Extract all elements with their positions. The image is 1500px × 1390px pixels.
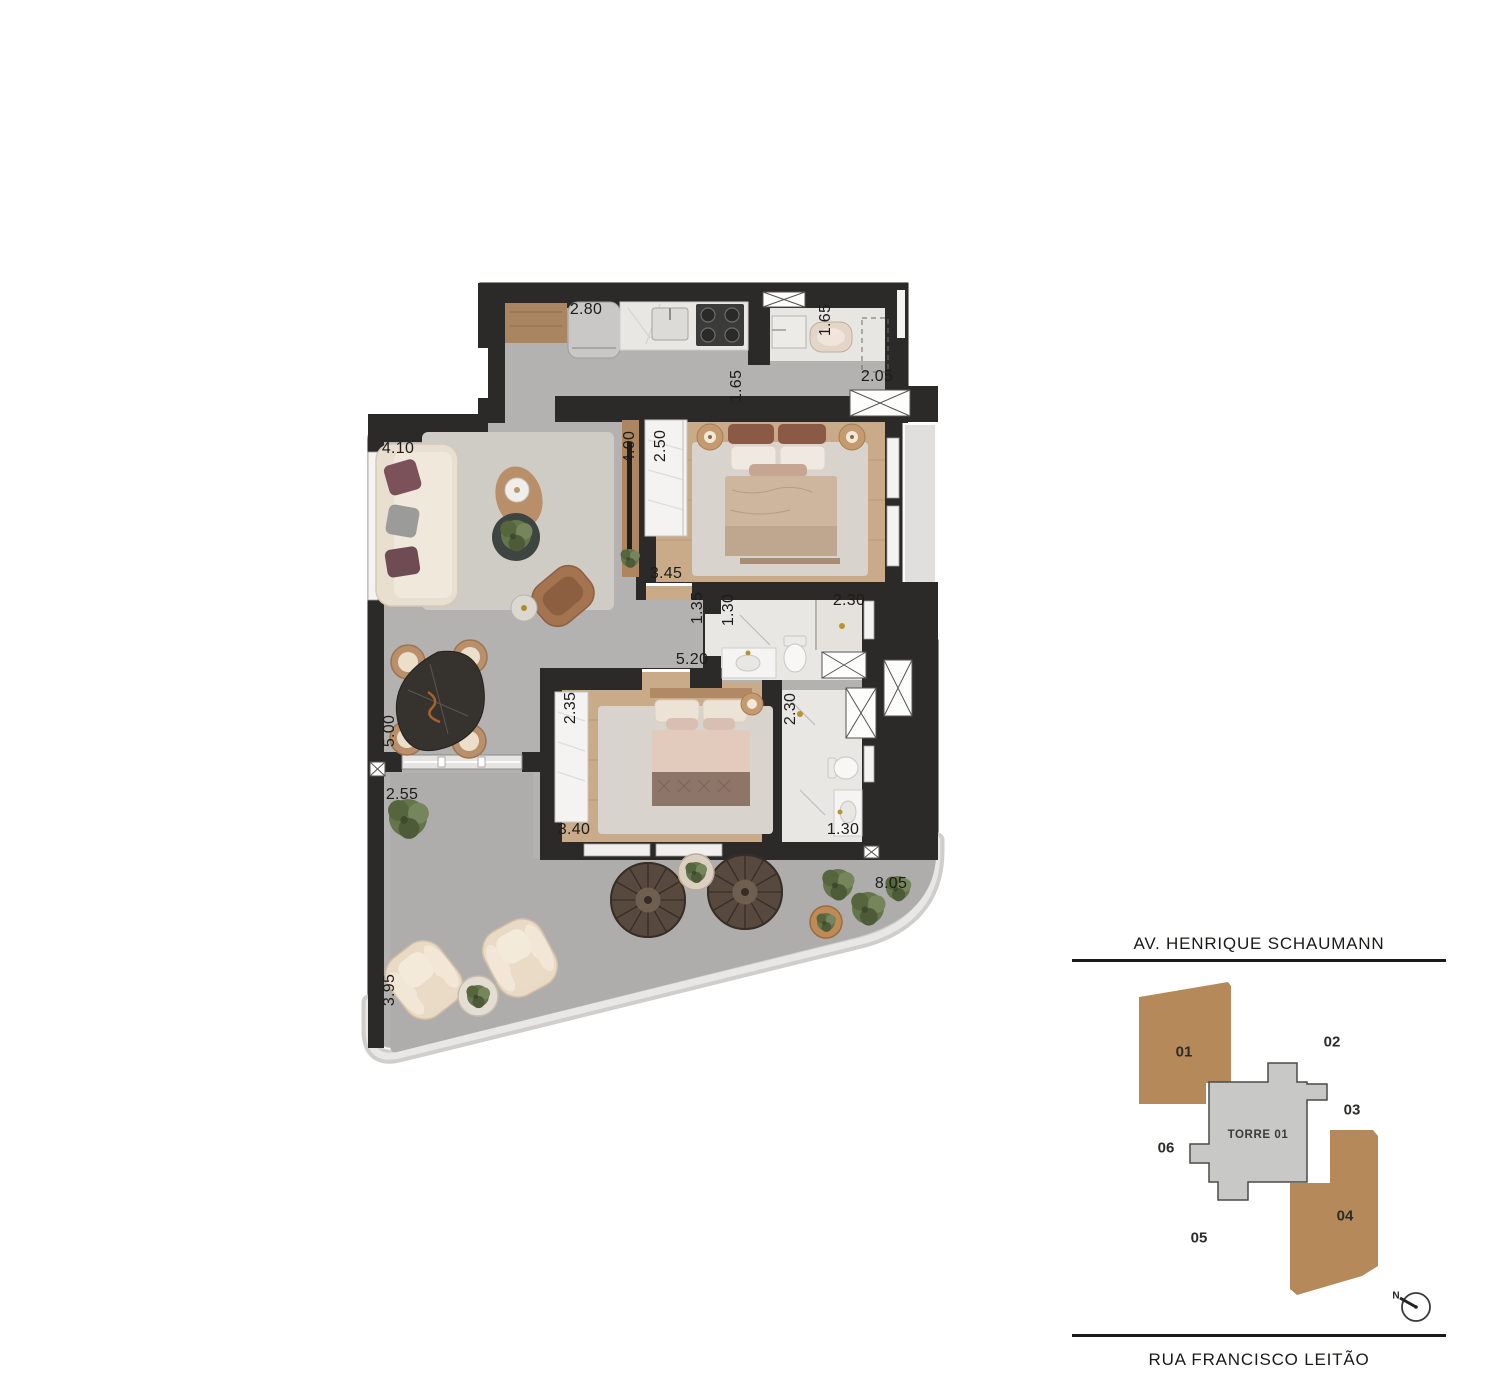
entry-side-door: [478, 348, 488, 398]
living-room: [376, 420, 640, 634]
entry-door-hatch: [850, 390, 910, 416]
nightstand: [839, 424, 865, 450]
tv: [627, 442, 632, 550]
entry-cabinet: [505, 303, 567, 343]
bathroom1-window: [864, 601, 874, 639]
bed-bench: [740, 558, 840, 564]
round-table: [678, 854, 714, 890]
wardrobe: [555, 692, 588, 822]
laundry-sink: [772, 316, 806, 348]
street-line-top: [1072, 959, 1446, 962]
toilet: [784, 636, 806, 672]
bedroom1-window: [887, 506, 899, 566]
bedroom2-door-gap: [642, 670, 690, 690]
dining-set: [390, 640, 487, 758]
north-compass: [1400, 1293, 1430, 1321]
refrigerator: [568, 302, 620, 358]
wardrobe: [645, 420, 687, 536]
floorplan-page: 2.801.652.051.654.104.002.503.451.351.30…: [0, 0, 1500, 1390]
round-table: [810, 906, 842, 938]
floor-plan: [368, 283, 938, 1057]
bathroom1-door-gap: [705, 614, 721, 656]
street-line-bottom: [1072, 1334, 1446, 1337]
nightstand: [697, 424, 723, 450]
toilet: [828, 757, 858, 779]
bedroom2-window: [584, 844, 650, 856]
bedroom2-window: [656, 844, 722, 856]
key-plan: [1072, 959, 1446, 1337]
wicker-chair: [707, 854, 783, 930]
bedroom1-door-gap: [646, 584, 692, 600]
torre-outline: [1190, 1063, 1327, 1200]
round-table: [458, 976, 498, 1016]
nightstand: [741, 693, 763, 715]
sofa: [376, 444, 458, 606]
wicker-chair: [610, 862, 686, 938]
unit-02-region: [1231, 978, 1400, 1083]
service-window: [897, 290, 905, 338]
floorplan-graphic: [0, 0, 1500, 1390]
bedroom1-window: [887, 438, 899, 498]
bathroom2-window: [864, 746, 874, 782]
bedroom-2: [555, 688, 773, 834]
unit-05-region: [1112, 1182, 1290, 1291]
